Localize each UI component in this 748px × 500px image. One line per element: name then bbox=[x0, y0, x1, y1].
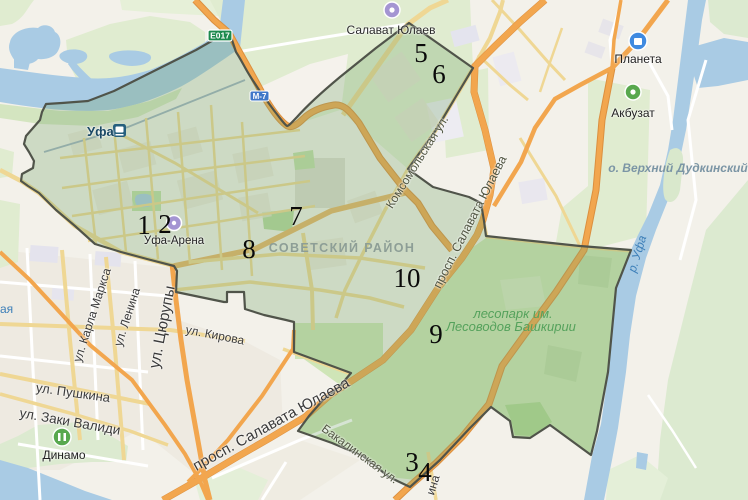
svg-text:Уфа: Уфа bbox=[87, 124, 114, 139]
svg-text:Уфа-Арена: Уфа-Арена bbox=[144, 235, 205, 247]
svg-text:Салават Юлаев: Салават Юлаев bbox=[347, 23, 436, 37]
svg-text:9: 9 bbox=[429, 319, 443, 349]
svg-text:Динамо: Динамо bbox=[42, 448, 85, 462]
svg-text:1: 1 bbox=[137, 210, 151, 240]
svg-text:6: 6 bbox=[432, 59, 446, 89]
svg-text:5: 5 bbox=[414, 38, 428, 68]
svg-text:М-7: М-7 bbox=[253, 92, 267, 101]
svg-text:8: 8 bbox=[242, 234, 256, 264]
svg-text:E017: E017 bbox=[210, 31, 230, 41]
svg-text:10: 10 bbox=[394, 263, 421, 293]
svg-text:Лесоводов Башкирии: Лесоводов Башкирии bbox=[445, 319, 576, 334]
svg-text:4: 4 bbox=[418, 457, 432, 487]
svg-text:3: 3 bbox=[405, 447, 419, 477]
svg-text:7: 7 bbox=[289, 201, 303, 231]
svg-text:Планета: Планета bbox=[614, 52, 662, 66]
svg-text:2: 2 bbox=[158, 209, 172, 239]
svg-text:о. Верхний Дудкинский: о. Верхний Дудкинский bbox=[608, 161, 748, 175]
svg-text:ая: ая bbox=[0, 302, 13, 316]
svg-text:Акбузат: Акбузат bbox=[611, 106, 655, 120]
svg-text:СОВЕТСКИЙ РАЙОН: СОВЕТСКИЙ РАЙОН bbox=[269, 240, 416, 255]
